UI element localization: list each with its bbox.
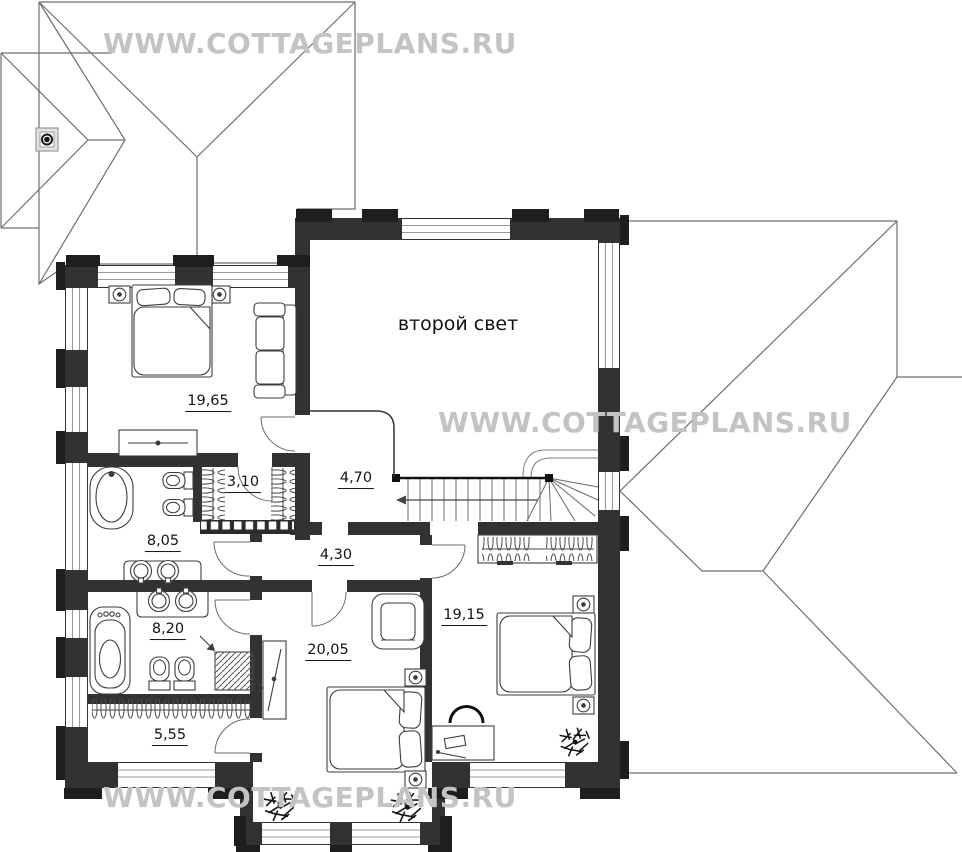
room-label-bathroom-upper: 8,05: [145, 534, 181, 552]
nightstand-lamp: [573, 697, 594, 714]
plant: [560, 728, 590, 757]
nightstand-lamp: [109, 286, 130, 303]
bathroom-lower-fixtures: [90, 588, 262, 694]
nightstand-lamp: [573, 596, 594, 613]
wardrobe: [478, 535, 597, 565]
bathroom-upper-fixtures: [90, 467, 201, 583]
bedroom-main-furniture: [109, 285, 296, 456]
room-label-bathroom-lower: 8,20: [150, 622, 186, 640]
room-label-void: второй свет: [398, 313, 518, 335]
bathtub: [90, 467, 133, 529]
room-label-bedroom-main: 19,65: [185, 394, 231, 412]
watermark-top: WWW.COTTAGEPLANS.RU: [103, 30, 517, 58]
stair-handrail: [523, 450, 598, 477]
door-bathroom-upper: [214, 542, 250, 576]
door-bedroom-center: [312, 592, 346, 626]
double-washbasin: [124, 561, 201, 584]
room-label-bedroom-center: 20,05: [305, 643, 351, 661]
cheval-mirror: [263, 641, 286, 719]
room-label-bedroom-right: 19,15: [441, 608, 487, 626]
toilet: [149, 657, 170, 690]
double-washbasin: [137, 588, 208, 617]
ornate-bathtub: [90, 607, 130, 694]
bedroom-center-furniture: [263, 594, 426, 788]
nightstand-lamp: [405, 669, 426, 686]
door-bathroom-lower: [215, 600, 250, 634]
double-bed: [132, 285, 212, 377]
watermark-middle: WWW.COTTAGEPLANS.RU: [438, 409, 852, 437]
floor-plan-second-floor: второй свет 19,65 3,10 4,70 8,05 4,30 8,…: [0, 0, 962, 852]
toilet: [163, 499, 193, 516]
double-bed: [327, 687, 425, 772]
toilet: [163, 472, 193, 489]
stair-direction-arrow: [396, 496, 538, 505]
double-bed: [497, 613, 595, 695]
dresser: [119, 430, 197, 456]
room-label-closet-small: 3,10: [225, 475, 261, 493]
bedroom-right-furniture: [432, 535, 597, 760]
sofa: [254, 303, 296, 398]
room-label-corridor: 4,30: [318, 548, 354, 566]
armchair: [372, 594, 424, 649]
desk-chair: [450, 707, 483, 723]
door-bedroom-right: [432, 545, 465, 578]
watermark-bottom: WWW.COTTAGEPLANS.RU: [103, 784, 517, 812]
roof-right: [620, 221, 962, 773]
room-label-closet-long: 5,55: [152, 728, 188, 746]
door-closet-long: [215, 719, 250, 753]
door-bedroom-main: [261, 417, 295, 451]
void-boundary: [310, 411, 394, 477]
toilet: [174, 657, 195, 690]
room-label-stair-hall: 4,70: [338, 471, 374, 489]
desk: [432, 726, 494, 760]
chimney: [36, 128, 58, 151]
closet-long-fittings: [92, 699, 250, 721]
